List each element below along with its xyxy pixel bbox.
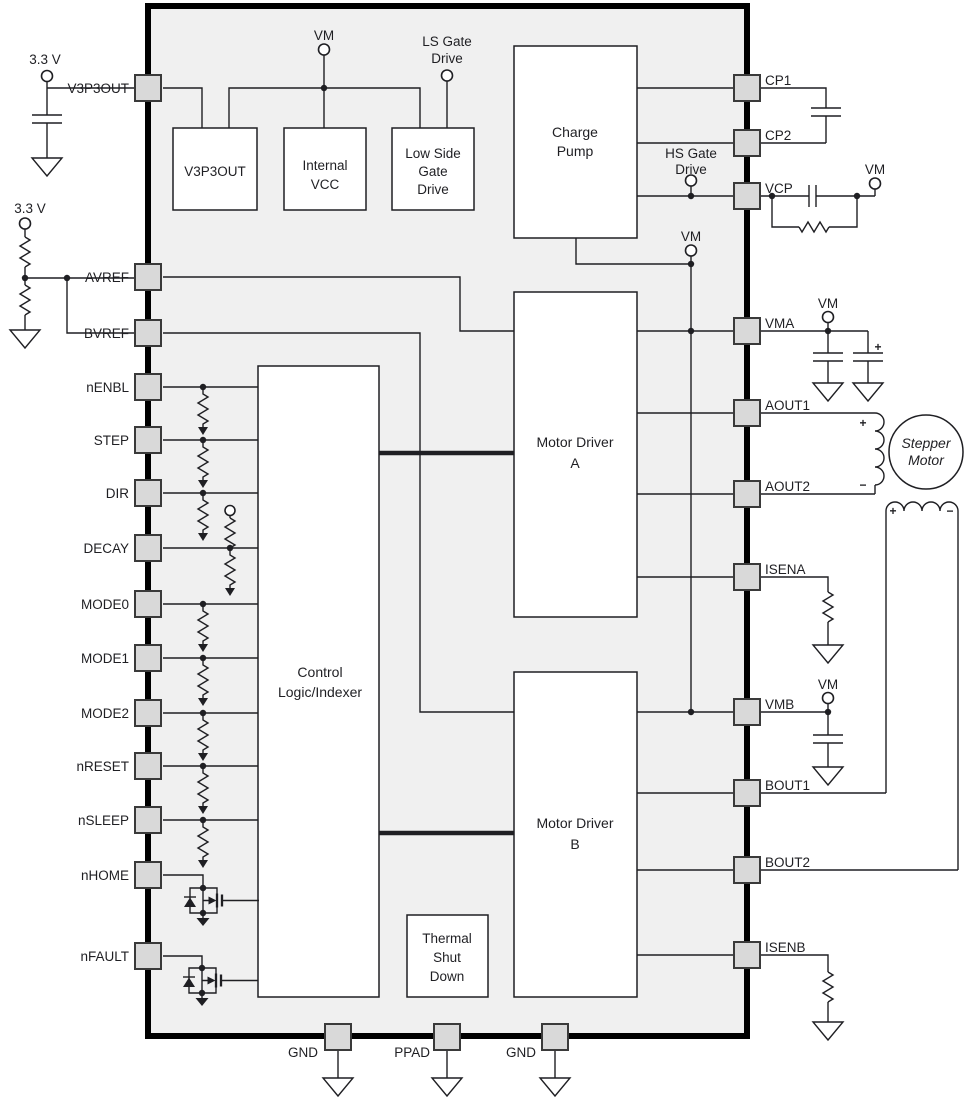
terminal-decay-pullup xyxy=(225,506,235,516)
pin-step xyxy=(135,427,161,453)
label-ls-gate: LS Gate xyxy=(422,34,472,49)
stepper-driver-functional-diagram: V3P3OUT Internal VCC Low Side Gate Drive… xyxy=(0,0,971,1100)
label-pin-nreset: nRESET xyxy=(76,759,129,774)
pin-v3p3out xyxy=(135,75,161,101)
block-charge-pump-label2: Pump xyxy=(557,143,594,159)
block-thermal-label2: Shut xyxy=(433,950,461,965)
winding-a-coil xyxy=(875,413,884,485)
pin-gnd1 xyxy=(325,1024,351,1050)
label-pin-nenbl: nENBL xyxy=(86,380,129,395)
terminal-vm-vmb xyxy=(823,693,834,704)
resistor-isenb xyxy=(823,972,833,1002)
label-vm-vcp: VM xyxy=(865,162,885,177)
stepper-motor-label2: Motor xyxy=(908,452,945,468)
resistor-vcp xyxy=(799,222,829,232)
pin-aout1 xyxy=(734,400,760,426)
resistor-vref-bottom xyxy=(20,285,30,315)
terminal-vm-vma xyxy=(823,312,834,323)
label-pin-bvref: BVREF xyxy=(84,326,129,341)
ground-isenb xyxy=(813,1022,843,1040)
terminal-vm-chargepump xyxy=(686,245,697,256)
label-3v3-top: 3.3 V xyxy=(29,52,61,67)
block-control-logic-label: Control xyxy=(297,664,342,680)
label-vm-chargepump: VM xyxy=(681,229,701,244)
label-pin-gnd1: GND xyxy=(288,1045,318,1060)
label-pin-cp2: CP2 xyxy=(765,128,791,143)
block-motor-driver-a-label: Motor Driver xyxy=(536,434,613,450)
block-lsgd-label: Low Side xyxy=(405,146,461,161)
pin-nhome xyxy=(135,862,161,888)
pin-mode0 xyxy=(135,591,161,617)
label-pin-step: STEP xyxy=(94,433,129,448)
pin-cp1 xyxy=(734,75,760,101)
pin-aout2 xyxy=(734,481,760,507)
ground-isena xyxy=(813,645,843,663)
label-pin-aout2: AOUT2 xyxy=(765,479,810,494)
label-pin-bout1: BOUT1 xyxy=(765,778,810,793)
capacitor-v3p3out xyxy=(32,115,62,123)
terminal-3v3-vref xyxy=(20,218,31,229)
label-vm-vma: VM xyxy=(818,296,838,311)
pin-nreset xyxy=(135,753,161,779)
label-pin-isena: ISENA xyxy=(765,562,806,577)
label-pin-v3p3out: V3P3OUT xyxy=(67,81,129,96)
pin-isena xyxy=(734,564,760,590)
label-3v3-vref: 3.3 V xyxy=(14,201,46,216)
label-pin-isenb: ISENB xyxy=(765,940,806,955)
block-diagram: V3P3OUT Internal VCC Low Side Gate Drive… xyxy=(0,0,971,1100)
label-pin-cp1: CP1 xyxy=(765,73,791,88)
label-vm-vmb: VM xyxy=(818,677,838,692)
ground-vmb-cap xyxy=(813,767,843,785)
capacitor-vma-bulk xyxy=(853,353,883,361)
ground-vma-cap1 xyxy=(813,383,843,401)
label-pin-mode0: MODE0 xyxy=(81,597,129,612)
label-pin-dir: DIR xyxy=(106,486,130,501)
label-pin-vma: VMA xyxy=(765,316,794,331)
resistor-isena xyxy=(823,592,833,622)
label-pin-bout2: BOUT2 xyxy=(765,855,810,870)
pin-mode2 xyxy=(135,700,161,726)
label-pin-vcp: VCP xyxy=(765,181,793,196)
label-pin-avref: AVREF xyxy=(85,270,129,285)
block-charge-pump-label: Charge xyxy=(552,124,598,140)
ground-vref-divider xyxy=(10,330,40,348)
block-v3p3out-label: V3P3OUT xyxy=(184,164,246,179)
block-control-logic xyxy=(258,366,379,997)
label-pin-ppad: PPAD xyxy=(394,1045,430,1060)
capacitor-vcp xyxy=(809,185,816,207)
winding-a-minus: − xyxy=(859,478,866,492)
block-control-logic-label2: Logic/Indexer xyxy=(278,684,362,700)
capacitor-vma-ceramic xyxy=(813,353,843,361)
label-ls-gate2: Drive xyxy=(431,51,463,66)
winding-b-minus: − xyxy=(946,504,953,518)
label-pin-mode2: MODE2 xyxy=(81,706,129,721)
pin-mode1 xyxy=(135,645,161,671)
block-charge-pump xyxy=(514,46,637,238)
ground-v3p3out-cap xyxy=(32,158,62,176)
label-pin-aout1: AOUT1 xyxy=(765,398,810,413)
pin-nenbl xyxy=(135,374,161,400)
pin-vma xyxy=(734,318,760,344)
pin-decay xyxy=(135,535,161,561)
pin-gnd2 xyxy=(542,1024,568,1050)
pin-bvref xyxy=(135,320,161,346)
block-lsgd-label3: Drive xyxy=(417,182,449,197)
label-hs-gate: HS Gate xyxy=(665,146,717,161)
block-thermal-label: Thermal xyxy=(422,931,472,946)
winding-a-plus: + xyxy=(859,416,866,430)
resistor-vref-top xyxy=(20,237,30,267)
ground-gnd1 xyxy=(323,1078,353,1096)
label-pin-nfault: nFAULT xyxy=(80,949,129,964)
pin-dir xyxy=(135,480,161,506)
label-vma-cap-plus: + xyxy=(874,340,881,354)
block-motor-driver-a-label2: A xyxy=(570,455,580,471)
pin-nsleep xyxy=(135,807,161,833)
pin-ppad xyxy=(434,1024,460,1050)
terminal-3v3-top xyxy=(42,71,53,82)
pin-bout1 xyxy=(734,780,760,806)
ground-vma-cap2 xyxy=(853,383,883,401)
block-thermal-label3: Down xyxy=(430,969,465,984)
label-vm-top: VM xyxy=(314,28,334,43)
ground-gnd2 xyxy=(540,1078,570,1096)
label-pin-nsleep: nSLEEP xyxy=(78,813,129,828)
label-pin-nhome: nHOME xyxy=(81,868,129,883)
stepper-motor-label: Stepper xyxy=(901,435,951,451)
terminal-vm-vcp xyxy=(870,178,881,189)
label-pin-gnd2: GND xyxy=(506,1045,536,1060)
ground-ppad xyxy=(432,1078,462,1096)
pin-bout2 xyxy=(734,857,760,883)
label-pin-mode1: MODE1 xyxy=(81,651,129,666)
capacitor-vmb xyxy=(813,735,843,743)
block-motor-driver-b-label2: B xyxy=(570,836,579,852)
block-motor-driver-b-label: Motor Driver xyxy=(536,815,613,831)
winding-b-plus: + xyxy=(889,504,896,518)
block-internal-vcc-label: Internal xyxy=(302,158,347,173)
pin-vcp xyxy=(734,183,760,209)
pin-isenb xyxy=(734,942,760,968)
label-hs-gate2: Drive xyxy=(675,162,707,177)
pin-vmb xyxy=(734,699,760,725)
label-pin-vmb: VMB xyxy=(765,697,794,712)
pin-nfault xyxy=(135,943,161,969)
block-motor-driver-b xyxy=(514,672,637,997)
block-lsgd-label2: Gate xyxy=(418,164,447,179)
capacitor-cp-flying xyxy=(811,108,841,116)
terminal-ls-gate-drive xyxy=(442,70,453,81)
terminal-vm-top xyxy=(319,44,330,55)
winding-b-leads xyxy=(886,511,958,870)
pin-cp2 xyxy=(734,130,760,156)
label-pin-decay: DECAY xyxy=(83,541,129,556)
pin-avref xyxy=(135,264,161,290)
block-internal-vcc-label2: VCC xyxy=(311,177,340,192)
